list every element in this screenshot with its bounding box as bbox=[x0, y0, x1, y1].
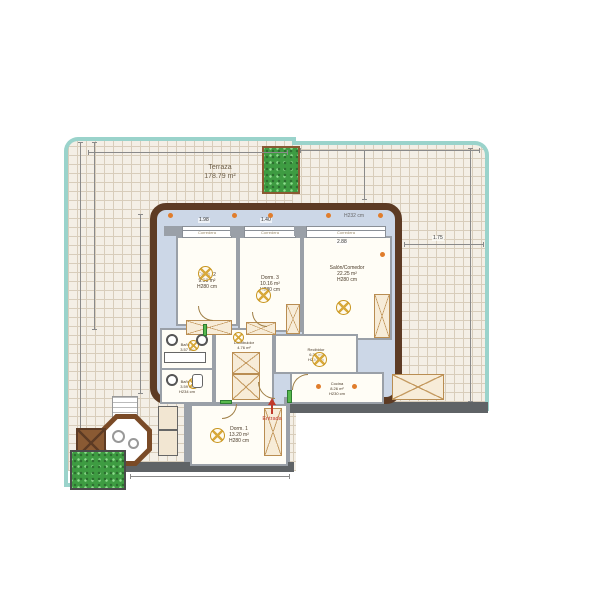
sink-icon bbox=[166, 334, 178, 346]
window-label: Corredera bbox=[198, 230, 216, 235]
ceiling-light-icon bbox=[233, 332, 244, 343]
terrace-label: Terraza 178.79 m² bbox=[188, 163, 252, 181]
room-height: H280 cm bbox=[197, 284, 217, 290]
dimension-line bbox=[364, 150, 365, 200]
room-area: 4.76 m² bbox=[234, 345, 254, 350]
wardrobe-crossbox bbox=[286, 304, 300, 334]
terrace-area-value: 178.79 m² bbox=[188, 172, 252, 181]
downlight-dot bbox=[268, 213, 273, 218]
hot-tub-seat bbox=[128, 438, 139, 449]
room-area: 8.26 m² bbox=[329, 386, 345, 391]
ceiling-light-icon bbox=[210, 428, 225, 443]
room-name: Recibidor bbox=[308, 347, 325, 352]
ceiling-light-icon bbox=[336, 300, 351, 315]
wall-stub bbox=[164, 226, 182, 236]
dimension-label: 1.40 bbox=[260, 218, 272, 223]
room-name: Dorm. 1 bbox=[229, 426, 249, 432]
ceiling-light-icon bbox=[256, 288, 271, 303]
dimension-line bbox=[80, 142, 81, 462]
window-label: Corredera bbox=[261, 230, 279, 235]
downlight-dot bbox=[352, 384, 357, 389]
room-label: Dorm. 1 13.20 m² H280 cm bbox=[229, 426, 249, 445]
dimension-label: 2.88 bbox=[336, 240, 348, 245]
room-name: Salón/Comedor bbox=[330, 265, 365, 271]
terrace-name: Terraza bbox=[188, 163, 252, 172]
entrance-door-leaf bbox=[287, 390, 292, 403]
wardrobe-crossbox bbox=[186, 320, 232, 335]
ac-unit bbox=[158, 406, 178, 430]
door-leaf bbox=[203, 324, 207, 336]
closet-crossbox bbox=[232, 352, 260, 374]
downlight-dot bbox=[168, 213, 173, 218]
toilet-icon bbox=[192, 374, 203, 388]
wardrobe-crossbox bbox=[374, 294, 390, 338]
dimension-label: 1.75 bbox=[432, 236, 444, 241]
window-label: Corredera bbox=[337, 230, 355, 235]
downlight-dot bbox=[326, 213, 331, 218]
ac-unit bbox=[158, 430, 178, 456]
window-sliding-2: Corredera bbox=[244, 226, 296, 238]
wall-stub bbox=[294, 226, 306, 236]
window-sliding-1: Corredera bbox=[182, 226, 232, 238]
downlight-dot bbox=[316, 384, 321, 389]
dimension-line bbox=[94, 142, 95, 330]
downlight-dot bbox=[380, 252, 385, 257]
dimension-line bbox=[130, 476, 290, 477]
dimension-label: 1.98 bbox=[198, 218, 210, 223]
bathtub-icon bbox=[164, 352, 206, 363]
ceiling-light-icon bbox=[198, 266, 213, 281]
dimension-line bbox=[404, 244, 484, 245]
room-label: Salón/Comedor 22.25 m² H280 cm bbox=[330, 265, 365, 284]
entrance-label: Entrada bbox=[254, 416, 290, 422]
closet-crossbox bbox=[232, 374, 260, 400]
room-height: H280 cm bbox=[229, 438, 249, 444]
downlight-dot bbox=[378, 213, 383, 218]
wall-stub bbox=[230, 226, 244, 236]
room-banyo1: Baño 1 3.59 m² H234 cm bbox=[160, 368, 214, 404]
room-height: H234 cm bbox=[179, 389, 195, 394]
room-height: H230 cm bbox=[329, 391, 345, 396]
dimension-line bbox=[140, 214, 141, 394]
ceiling-height-label: H232 cm bbox=[344, 213, 364, 219]
room-name: Cocina bbox=[329, 381, 345, 386]
dimension-line bbox=[300, 150, 480, 151]
hot-tub-seat bbox=[112, 430, 125, 443]
sink-icon bbox=[166, 374, 178, 386]
room-height: H280 cm bbox=[330, 277, 365, 283]
room-name: Dorm. 3 bbox=[260, 275, 280, 281]
ceiling-light-icon bbox=[312, 352, 327, 367]
downlight-dot bbox=[232, 213, 237, 218]
floorplan-canvas: Terraza 178.79 m² 1.75 2.46 Dorm. 2 9.98… bbox=[0, 0, 600, 600]
dimension-line bbox=[88, 152, 288, 153]
planter-top bbox=[262, 146, 300, 194]
terrace-unit-crossbox bbox=[392, 374, 444, 400]
entrance-arrow-stem bbox=[271, 405, 273, 414]
room-label: Cocina 8.26 m² H230 cm bbox=[329, 381, 345, 396]
planter-bottom bbox=[70, 450, 126, 490]
window-sliding-3: Corredera bbox=[306, 226, 386, 238]
entrance-arrow-icon bbox=[268, 398, 276, 405]
dimension-line bbox=[470, 148, 471, 402]
